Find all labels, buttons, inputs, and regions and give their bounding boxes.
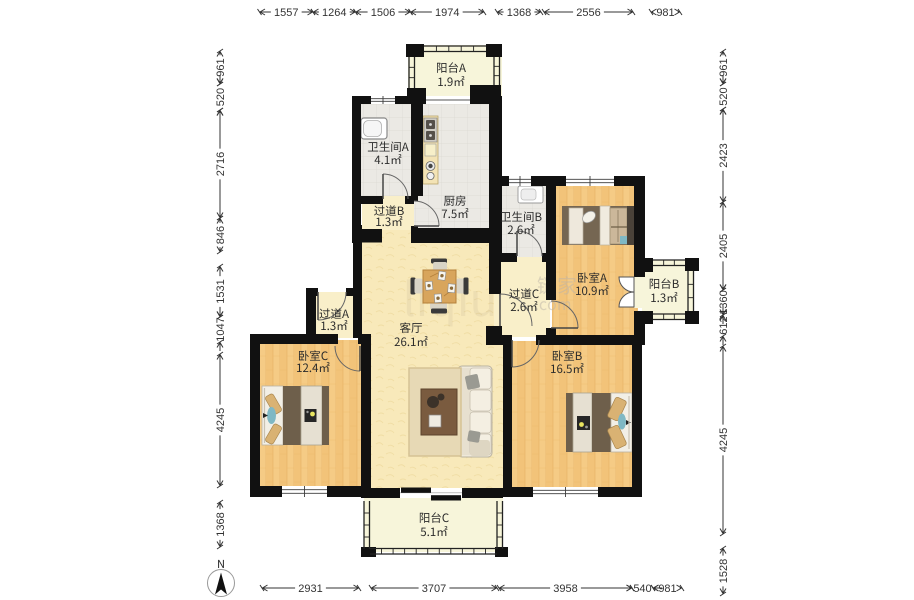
- svg-text:1528: 1528: [718, 559, 730, 583]
- svg-text:1047: 1047: [215, 317, 227, 341]
- svg-text:1360: 1360: [718, 290, 730, 314]
- svg-text:520: 520: [718, 87, 730, 105]
- svg-text:1974: 1974: [435, 7, 459, 19]
- svg-text:2716: 2716: [215, 152, 227, 176]
- svg-text:2405: 2405: [718, 234, 730, 258]
- svg-text:961: 961: [215, 58, 227, 76]
- svg-text:2931: 2931: [298, 583, 322, 595]
- svg-text:1264: 1264: [322, 7, 346, 19]
- svg-text:2423: 2423: [718, 143, 730, 167]
- svg-text:1506: 1506: [371, 7, 395, 19]
- svg-text:961: 961: [718, 58, 730, 76]
- svg-text:1368: 1368: [215, 512, 227, 536]
- svg-text:3707: 3707: [422, 583, 446, 595]
- svg-text:1531: 1531: [215, 279, 227, 303]
- svg-text:981: 981: [656, 7, 674, 19]
- svg-text:4245: 4245: [718, 428, 730, 452]
- svg-text:612: 612: [718, 316, 730, 334]
- svg-text:4245: 4245: [215, 408, 227, 432]
- svg-text:1368: 1368: [507, 7, 531, 19]
- svg-text:1557: 1557: [274, 7, 298, 19]
- svg-text:846: 846: [215, 226, 227, 244]
- svg-text:3958: 3958: [553, 583, 577, 595]
- svg-text:981: 981: [658, 583, 676, 595]
- svg-text:520: 520: [215, 88, 227, 106]
- svg-text:2556: 2556: [576, 7, 600, 19]
- svg-text:540: 540: [633, 583, 651, 595]
